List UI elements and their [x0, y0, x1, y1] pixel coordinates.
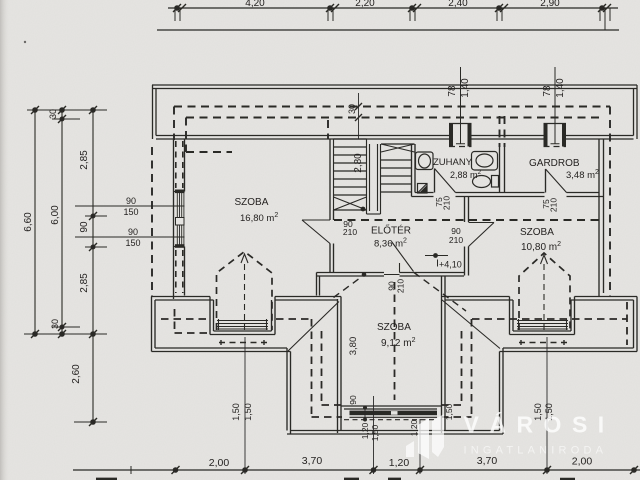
svg-text:2,85: 2,85	[79, 150, 90, 170]
svg-text:90: 90	[128, 227, 138, 237]
svg-text:3,70: 3,70	[302, 455, 323, 467]
svg-text:+4,10: +4,10	[439, 260, 462, 270]
svg-text:3,80: 3,80	[348, 337, 359, 356]
svg-text:90: 90	[348, 395, 358, 405]
svg-text:2,88 m2: 2,88 m2	[450, 169, 482, 180]
svg-text:2,00: 2,00	[572, 456, 593, 468]
svg-text:2,90: 2,90	[540, 0, 560, 9]
svg-text:SZOBA: SZOBA	[235, 197, 269, 208]
svg-text:210: 210	[343, 227, 357, 237]
svg-text:30: 30	[50, 319, 60, 329]
svg-text:210: 210	[449, 235, 463, 245]
svg-text:2,60: 2,60	[71, 364, 82, 384]
svg-text:1,40: 1,40	[460, 78, 471, 98]
svg-text:210: 210	[442, 196, 452, 210]
svg-text:4,20: 4,20	[245, 0, 265, 9]
svg-text:9,12 m2: 9,12 m2	[381, 337, 416, 349]
svg-text:8,36 m2: 8,36 m2	[374, 238, 407, 250]
svg-text:GARDROB: GARDROB	[529, 158, 580, 169]
svg-text:78: 78	[542, 85, 553, 97]
svg-text:1,40: 1,40	[555, 78, 566, 98]
svg-text:1,20: 1,20	[409, 419, 419, 436]
svg-text:ELŐTÉR: ELŐTÉR	[371, 223, 411, 237]
svg-text:10,80 m2: 10,80 m2	[521, 241, 561, 253]
svg-text:210: 210	[396, 279, 406, 293]
svg-text:2,00: 2,00	[209, 457, 230, 469]
svg-text:1,50: 1,50	[370, 424, 380, 441]
svg-text:ZUHANY: ZUHANY	[433, 157, 473, 168]
svg-text:210: 210	[549, 198, 559, 212]
svg-text:3,48 m2: 3,48 m2	[566, 169, 599, 181]
svg-text:INGATLANIRODA: INGATLANIRODA	[464, 445, 608, 457]
svg-text:1,20: 1,20	[360, 422, 370, 439]
svg-text:2,80: 2,80	[353, 153, 364, 173]
svg-text:30: 30	[347, 104, 357, 114]
svg-text:90: 90	[126, 196, 136, 206]
svg-text:2,85: 2,85	[79, 273, 90, 293]
svg-text:1,50: 1,50	[444, 403, 454, 420]
svg-text:1,50: 1,50	[243, 403, 253, 421]
svg-text:3,70: 3,70	[477, 455, 498, 467]
svg-text:1,20: 1,20	[389, 457, 410, 469]
svg-text:78: 78	[447, 85, 458, 97]
svg-text:SZOBA: SZOBA	[377, 322, 411, 333]
svg-text:VÁROSI: VÁROSI	[464, 411, 615, 438]
svg-text:90: 90	[79, 221, 90, 233]
svg-text:2,40: 2,40	[448, 0, 468, 9]
svg-text:150: 150	[123, 207, 138, 217]
svg-text:1,50: 1,50	[231, 403, 241, 421]
svg-text:30: 30	[48, 109, 58, 119]
svg-text:6,60: 6,60	[23, 212, 34, 232]
svg-text:150: 150	[125, 238, 140, 248]
svg-text:2,20: 2,20	[355, 0, 375, 9]
svg-text:6,00: 6,00	[50, 205, 61, 225]
svg-text:SZOBA: SZOBA	[520, 227, 554, 238]
svg-text:16,80 m2: 16,80 m2	[240, 212, 278, 224]
